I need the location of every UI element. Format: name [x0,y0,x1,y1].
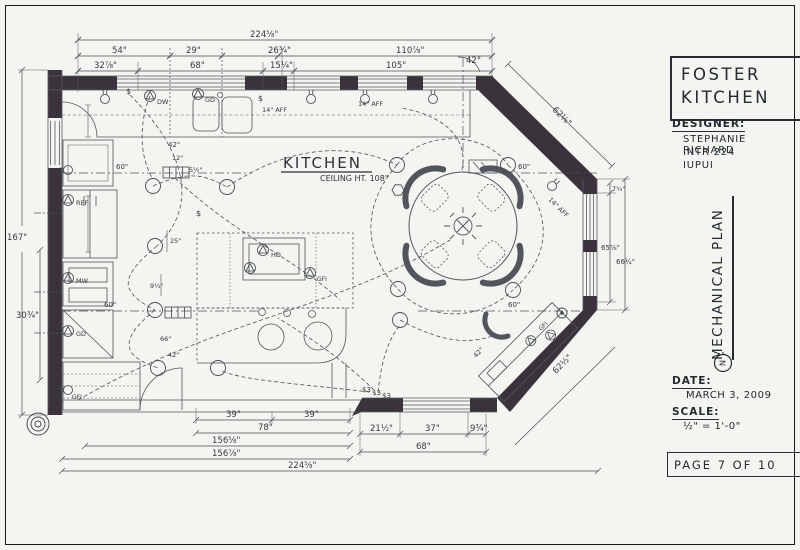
switch-symbol: $3 [382,392,391,400]
project-title-line1: FOSTER [681,63,800,86]
prep-bowl-left [258,324,284,350]
counter-return [332,363,346,398]
outlet-label-gfi: GFI [317,276,327,283]
outlet-label-disposal: GD [205,96,215,104]
counters [62,90,470,410]
dimension-label: 224⅝" [250,30,278,40]
outlet-label-gfi: GFI [72,394,82,401]
designer-label: DESIGNER: [672,118,745,132]
scanned-plan-sheet: KITCHEN CEILING HT. 108" 224⅝"54"29"26¾"… [0,0,800,550]
desk-chair [485,314,508,337]
dimension-label: 9¾" [470,424,488,434]
outlet-label-hood: HD [271,251,281,259]
dimension-label: 105" [386,61,406,71]
junction-symbol [392,185,404,195]
dimension-label: 60" [508,301,520,309]
entry-door [140,368,182,410]
dimension-label: 68" [416,442,431,452]
switch-symbol: $ [196,209,201,218]
peninsula-edge [197,308,346,363]
dimension-label: 32⅞" [94,61,117,71]
dimension-label: 29" [186,46,201,56]
dimension-label: 12" [172,154,183,162]
aff-note: 14" AFF [358,100,384,108]
cooktop [243,238,305,280]
pendant-light [259,309,266,316]
aff-note: 14" AFF [547,196,571,220]
switch-symbol: $3 [372,389,381,397]
dimension-label: 66¾" [616,258,635,266]
pantry-shelves [63,362,140,410]
designer-course: INTR 224 [683,147,735,158]
dimension-label: 26¾" [268,46,291,56]
dimension-label: 21½" [370,424,393,434]
upper-cabinet-box [63,140,113,186]
date-label: DATE: [672,375,712,389]
switch-symbol: $3 [362,386,371,394]
refrigerator [63,190,117,258]
dimension-label: 42" [472,346,486,360]
plan-title: MECHANICAL PLAN [710,198,726,360]
dimension-label: 156⅝" [212,436,240,446]
dimension-label: 30¾" [16,311,39,321]
dimension-label: 15¼" [270,61,293,71]
ceiling-note: CEILING HT. 108" [320,174,389,183]
outlet-label-dishwasher: DW [157,98,169,106]
wall-outlets [59,90,562,395]
dimension-label: 54" [112,46,127,56]
date-value: MARCH 3, 2009 [686,390,772,401]
dimension-label: 65⅝" [601,244,620,252]
dimension-label: 5½" [189,166,202,174]
aff-note: 14" AFF [262,106,288,114]
designer-school: IUPUI [683,160,714,171]
dimension-label: 66" [160,335,171,343]
detail-circle [27,413,49,435]
switch-symbol: $ [126,87,131,96]
dimension-label: 7¾" [612,185,625,193]
dimension-label: 60" [104,301,116,309]
chandelier-symbol [444,207,482,245]
page-number-box: PAGE 7 OF 10 [667,452,800,477]
dimension-label: 9¼" [150,282,163,290]
special-outlets [63,89,316,337]
dimension-label: 37" [425,424,440,434]
prep-bowl-right [304,322,332,350]
scale-label: SCALE: [672,406,719,420]
north-arrow-icon: N [712,352,734,374]
pendant-light [284,310,291,317]
dimension-label: 42" [168,141,180,149]
north-letter: N [719,360,728,366]
plan-title-underline [732,196,734,360]
dimension-label: 25" [170,237,181,245]
witness-lines [18,33,630,456]
outlet-label: GD [76,330,86,338]
dimension-label: 39" [304,410,319,420]
project-title-line2: KITCHEN [681,86,800,109]
dining-table [396,159,530,293]
scale-value: ½" = 1'-0" [683,421,741,432]
pendant-light [309,311,316,318]
dimension-label: 42° [466,56,481,66]
floor-outlet-symbol [557,308,567,318]
project-title-box: FOSTER KITCHEN [670,56,800,121]
dimension-label: 68" [190,61,205,71]
dimension-label: 167" [7,233,27,243]
room-title: KITCHEN [283,154,362,172]
dimension-label: 42" [168,351,179,359]
outlet-label-microwave: MW [76,277,89,285]
dimension-label: 78" [258,423,273,433]
dimension-label: 60" [518,163,530,171]
dimension-label: 156⅞" [212,449,240,459]
dimension-lines [19,37,628,474]
cabinet-dim-lines [85,105,167,296]
dimension-label: 224⅝" [288,461,316,471]
dimension-label: 60" [116,163,128,171]
dimension-label: 39" [226,410,241,420]
switch-symbol: $ [258,94,263,103]
outlet-label-refrigerator: REF [76,199,89,207]
dimension-label: 110⅞" [396,46,424,56]
